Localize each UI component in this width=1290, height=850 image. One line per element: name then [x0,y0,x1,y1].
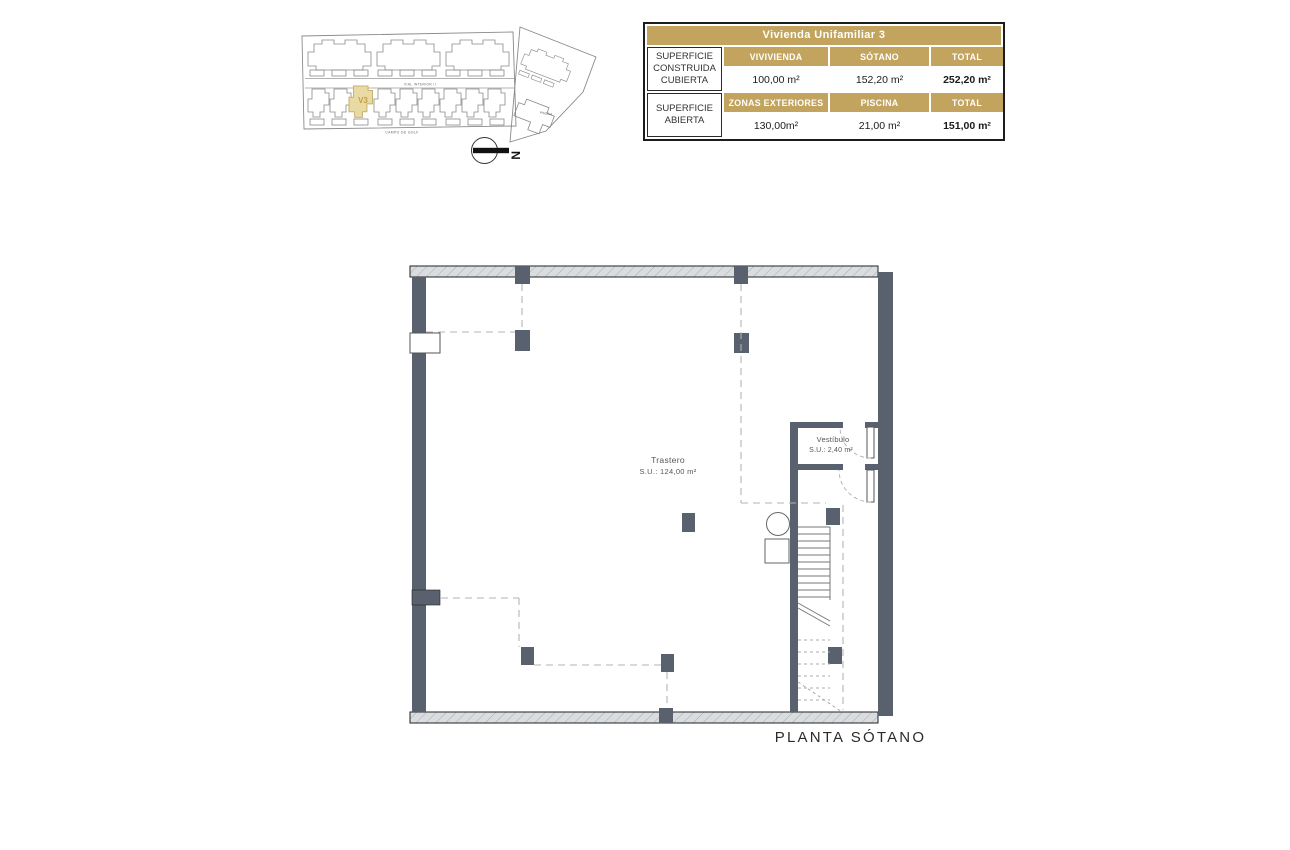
room-area-vestibulo: S.U.: 2,40 m² [809,447,853,454]
door-leaf [867,470,874,502]
wall-stub [412,590,440,605]
cell-value: 152,20 m² [830,68,929,91]
north-compass: N [472,138,523,164]
site-buildings-top-row [308,40,509,76]
top-wall [410,266,878,277]
right-wall [878,272,893,716]
door-leaf [867,427,874,458]
site-right-section [511,45,574,137]
room-area-trastero: S.U.: 124,00 m² [639,467,696,476]
site-houses-bottom-row [308,89,505,125]
boiler-circle [767,513,790,536]
col-header: PISCINA [830,93,929,112]
doors [839,422,878,502]
bottom-wall [410,712,878,723]
row-label-superficie-abierta: SUPERFICIE ABIERTA [647,93,722,137]
col-header: TOTAL [931,47,1003,66]
golf-course-label: CAMPO DE GOLF [385,131,418,135]
table-title: Vivienda Unifamiliar 3 [647,26,1001,45]
col-header: TOTAL [931,93,1003,112]
stair-break-line [798,603,830,626]
piscina-label: PISCINA [539,111,553,117]
room-name-trastero: Trastero [651,455,685,465]
dashed-projection-lines [426,284,843,710]
cell-total: 151,00 m² [931,114,1003,137]
wall-window-detail [410,333,440,353]
north-label: N [509,151,523,160]
area-summary-table: Vivienda Unifamiliar 3 SUPERFICIE CONSTR… [643,22,1005,141]
site-plan: VIAL INTERIOR II V3 CAMPO DE GOLF PISCIN… [290,20,612,170]
cell-value: 21,00 m² [830,114,929,137]
interior-walls [790,422,843,712]
col-header: VIVIVIENDA [724,47,828,66]
door-swing-arc [839,470,871,502]
street-label: VIAL INTERIOR II [404,83,436,87]
table-grid: SUPERFICIE CONSTRUIDA CUBIERTA VIVIVIEND… [647,47,1001,137]
highlighted-unit-label: V3 [358,96,368,105]
equipment-box [765,539,789,563]
col-header: SÓTANO [830,47,929,66]
staircase [798,527,842,712]
plan-caption: PLANTA SÓTANO [738,729,963,746]
floor-plan: Trastero S.U.: 124,00 m² Vestíbulo S.U.:… [395,252,915,752]
col-header: ZONAS EXTERIORES [724,93,828,112]
cell-value: 100,00 m² [724,68,828,91]
door-hinge [865,464,878,470]
room-name-vestibulo: Vestíbulo [817,435,850,444]
row-label-superficie-construida: SUPERFICIE CONSTRUIDA CUBIERTA [647,47,722,91]
cell-total: 252,20 m² [931,68,1003,91]
highlighted-unit-v3: V3 [349,86,373,117]
exterior-walls [410,266,893,723]
cell-value: 130,00m² [724,114,828,137]
